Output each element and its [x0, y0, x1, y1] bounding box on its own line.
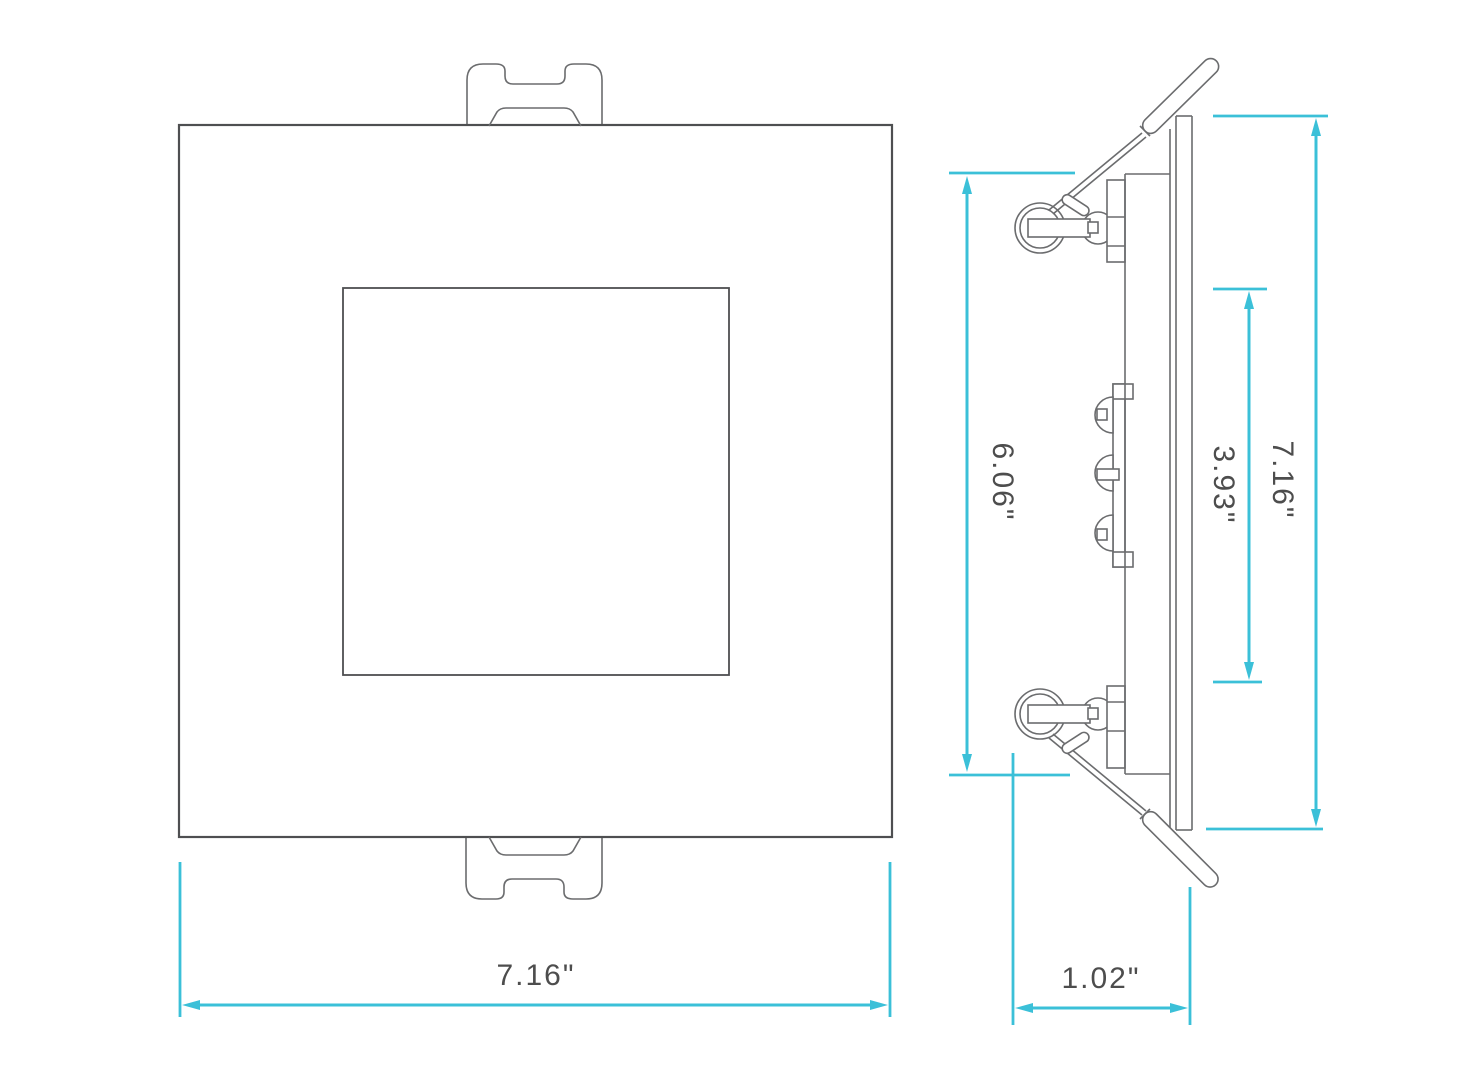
bottom-bracket — [1107, 686, 1125, 768]
top-clip-rod — [1139, 55, 1222, 137]
front-lens-square — [343, 288, 729, 675]
dimension-front-width: 7.16" — [180, 862, 890, 1017]
mid-strip-bottom-cap — [1113, 552, 1133, 567]
aperture-height-label: 3.93" — [1207, 445, 1240, 524]
recess-depth-label: 1.02" — [1061, 962, 1140, 995]
housing-outline — [1125, 129, 1170, 830]
bottom-pivot-notch — [1088, 708, 1098, 719]
top-pivot-rod — [1028, 219, 1090, 237]
front-view — [179, 64, 892, 899]
side-view — [1015, 55, 1222, 890]
front-bottom-tab-detail — [489, 837, 581, 855]
front-width-label: 7.16" — [496, 959, 575, 992]
top-bracket — [1107, 180, 1125, 262]
overall-height-label: 7.16" — [1266, 440, 1299, 519]
dimension-aperture-height: 3.93" — [1207, 289, 1267, 682]
front-outer-square — [179, 125, 892, 837]
housing-height-label: 6.06" — [986, 442, 1019, 521]
bottom-clip-rod — [1139, 808, 1221, 890]
dimension-housing-height: 6.06" — [949, 173, 1075, 775]
top-pivot-notch — [1088, 222, 1098, 233]
dimension-drawing: 7.16" 6.06" 3.93" 7.16" 1.02" — [0, 0, 1458, 1089]
front-top-tab — [467, 64, 602, 126]
dimension-recess-depth: 1.02" — [1013, 753, 1190, 1025]
front-top-tab-detail — [489, 108, 581, 126]
flange-plate — [1176, 116, 1192, 830]
mid-strip-top-cap — [1113, 384, 1133, 399]
front-bottom-tab — [466, 837, 602, 899]
bottom-pivot-rod — [1028, 705, 1090, 723]
